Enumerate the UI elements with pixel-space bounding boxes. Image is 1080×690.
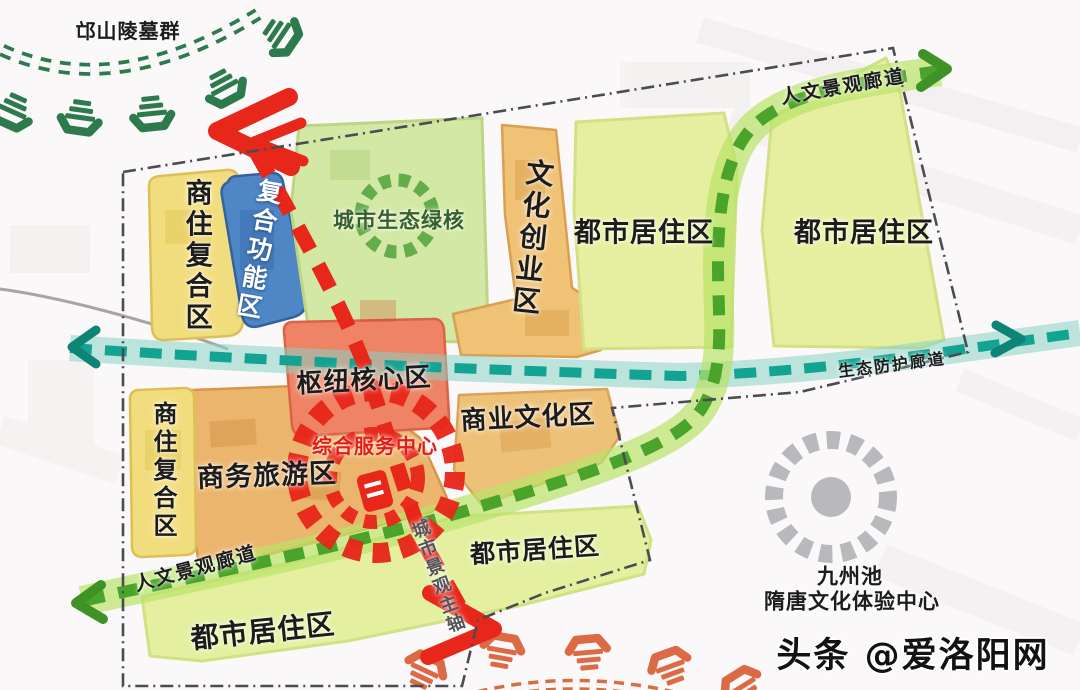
zone-shangzhu-bottom [130, 388, 196, 557]
map-graphics [0, 0, 1080, 690]
planning-map-canvas: 邙山陵墓群 商住复合区 复合功能区 城市生态绿核 文化创业区 都市居住区 都市居… [0, 0, 1080, 690]
jiuzhou-center-dot-icon [811, 477, 851, 517]
